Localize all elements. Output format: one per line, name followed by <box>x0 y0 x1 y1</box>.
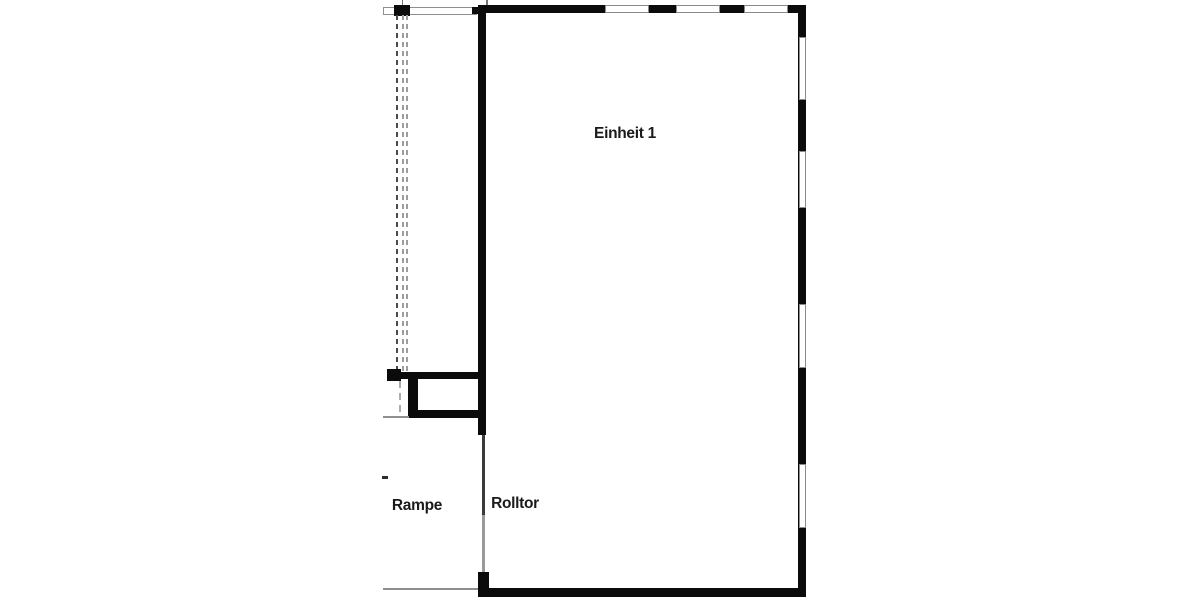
window-top-1 <box>605 5 649 13</box>
wall-left <box>478 5 486 435</box>
window-right-1 <box>799 37 806 100</box>
room-label-einheit1: Einheit 1 <box>565 125 685 143</box>
window-right-3 <box>799 304 806 368</box>
stair-bottom-bar <box>408 410 486 418</box>
grid-tick-line-left <box>402 0 404 5</box>
window-right-2 <box>799 151 806 208</box>
ramp-tick-mark <box>382 476 388 479</box>
center-dashed-line-lower <box>399 381 401 416</box>
floorplan-canvas: Einheit 1 Rampe Rolltor <box>0 0 1200 600</box>
window-top-3 <box>744 5 788 13</box>
wall-corner-block <box>478 572 489 597</box>
door-label-rolltor: Rolltor <box>465 495 565 513</box>
roller-door-line-lower <box>482 515 485 573</box>
rail-dashed-line-left <box>396 15 398 371</box>
stair-top-bar-nub <box>387 369 401 381</box>
column-marker <box>394 5 410 16</box>
stair-top-bar <box>387 372 483 379</box>
window-right-4 <box>799 464 806 528</box>
rail-dashed-line-right <box>406 15 408 371</box>
wall-bottom <box>478 588 806 597</box>
dock-edge-bottom-line <box>383 588 478 590</box>
stair-gray-stub-line <box>383 416 409 418</box>
window-top-2 <box>676 5 720 13</box>
area-label-rampe: Rampe <box>367 497 467 515</box>
rail-dashed-line-mid <box>402 15 404 371</box>
